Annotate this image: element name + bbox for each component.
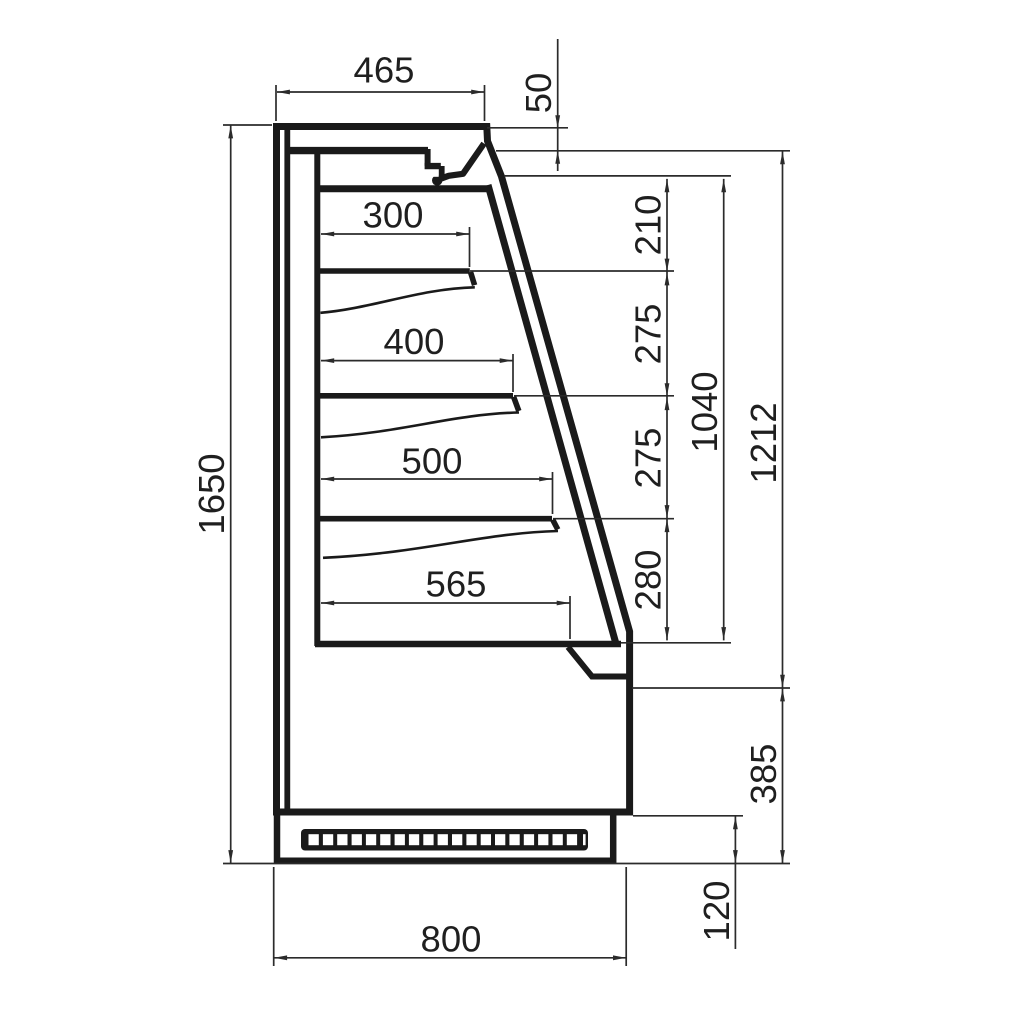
svg-text:275: 275	[628, 304, 669, 365]
svg-text:565: 565	[426, 563, 487, 604]
svg-text:50: 50	[518, 73, 559, 114]
svg-text:210: 210	[628, 195, 669, 256]
svg-text:280: 280	[628, 550, 669, 611]
svg-text:465: 465	[354, 49, 415, 90]
svg-text:300: 300	[363, 194, 424, 235]
svg-text:800: 800	[421, 918, 482, 959]
svg-text:400: 400	[384, 321, 445, 362]
svg-text:275: 275	[628, 428, 669, 489]
svg-text:385: 385	[743, 744, 784, 805]
svg-text:1650: 1650	[191, 453, 232, 534]
svg-text:1212: 1212	[743, 402, 784, 483]
svg-text:1040: 1040	[684, 371, 725, 452]
svg-text:120: 120	[696, 881, 737, 942]
svg-text:500: 500	[402, 440, 463, 481]
